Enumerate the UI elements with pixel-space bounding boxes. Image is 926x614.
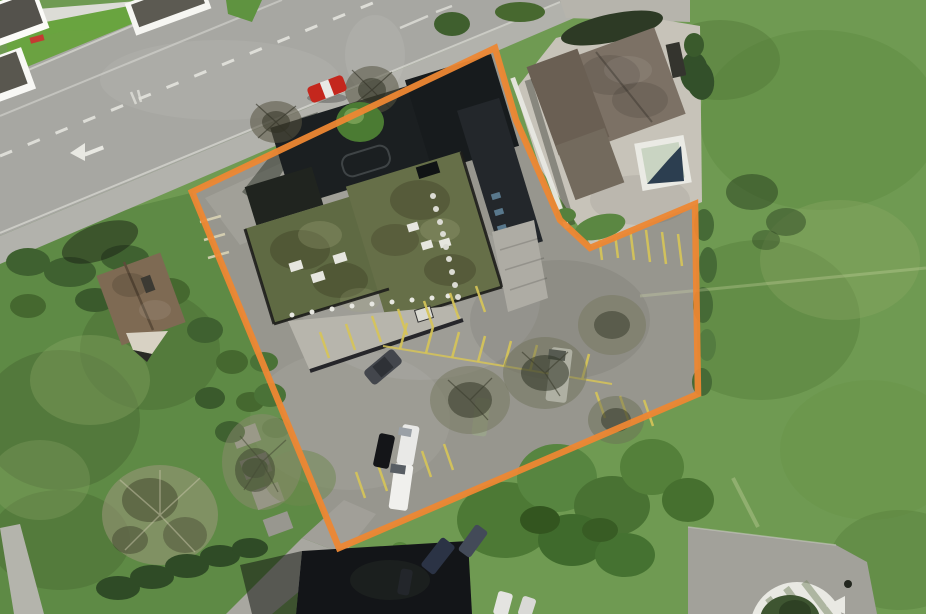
south-tree-shadow	[520, 506, 560, 534]
annex-posts-dot	[390, 300, 395, 305]
cottage-roof-shade	[112, 273, 148, 297]
garden-bush	[195, 387, 225, 409]
stepping-stones-dot	[437, 219, 443, 225]
south-tree-mass	[662, 478, 714, 522]
big-bare-tree-speckle	[112, 526, 148, 554]
aerial-scene	[0, 0, 926, 614]
hedgerow	[232, 538, 268, 558]
stepping-stones-dot	[449, 269, 455, 275]
annex-posts-dot	[410, 298, 415, 303]
east-scrub	[699, 247, 717, 283]
south-tree-shadow	[582, 518, 618, 542]
stepping-stones-dot	[455, 294, 461, 300]
garden-bush	[187, 317, 223, 343]
annex-posts-dot	[310, 310, 315, 315]
meadow-shrub	[684, 33, 704, 57]
meadow-tree-shadow	[752, 230, 780, 250]
roadside-shrub	[495, 2, 545, 22]
aerial-map-viewport[interactable]	[0, 0, 926, 614]
garden-bush	[10, 294, 46, 318]
dark-building-patch	[350, 560, 430, 600]
bollard	[844, 580, 852, 588]
stepping-stones-dot	[440, 231, 446, 237]
roadside-shrub	[434, 12, 470, 36]
stepping-stones-dot	[452, 282, 458, 288]
house-roof-shade	[612, 82, 668, 118]
stepping-stones-dot	[430, 193, 436, 199]
parking-tree-core	[594, 311, 630, 339]
stepping-stones-dot	[433, 206, 439, 212]
garden-bush	[6, 248, 50, 276]
east-scrub	[698, 329, 716, 361]
cottage-roof-light	[139, 300, 171, 320]
big-bare-tree-speckle	[122, 478, 178, 522]
garden-bush	[216, 350, 248, 374]
annex-posts-dot	[290, 313, 295, 318]
stepping-stones-dot	[443, 244, 449, 250]
green-roof-light	[340, 288, 380, 312]
annex-posts-dot	[370, 302, 375, 307]
green-roof-mottle	[390, 180, 450, 220]
annex-posts-dot	[330, 307, 335, 312]
stepping-stones-dot	[446, 256, 452, 262]
big-bare-tree-speckle	[163, 517, 207, 553]
meadow-tree-shadow	[726, 174, 778, 210]
green-roof-light	[298, 221, 342, 249]
annex-posts-dot	[350, 304, 355, 309]
garden-mottle	[30, 335, 150, 425]
annex-posts-dot	[430, 296, 435, 301]
